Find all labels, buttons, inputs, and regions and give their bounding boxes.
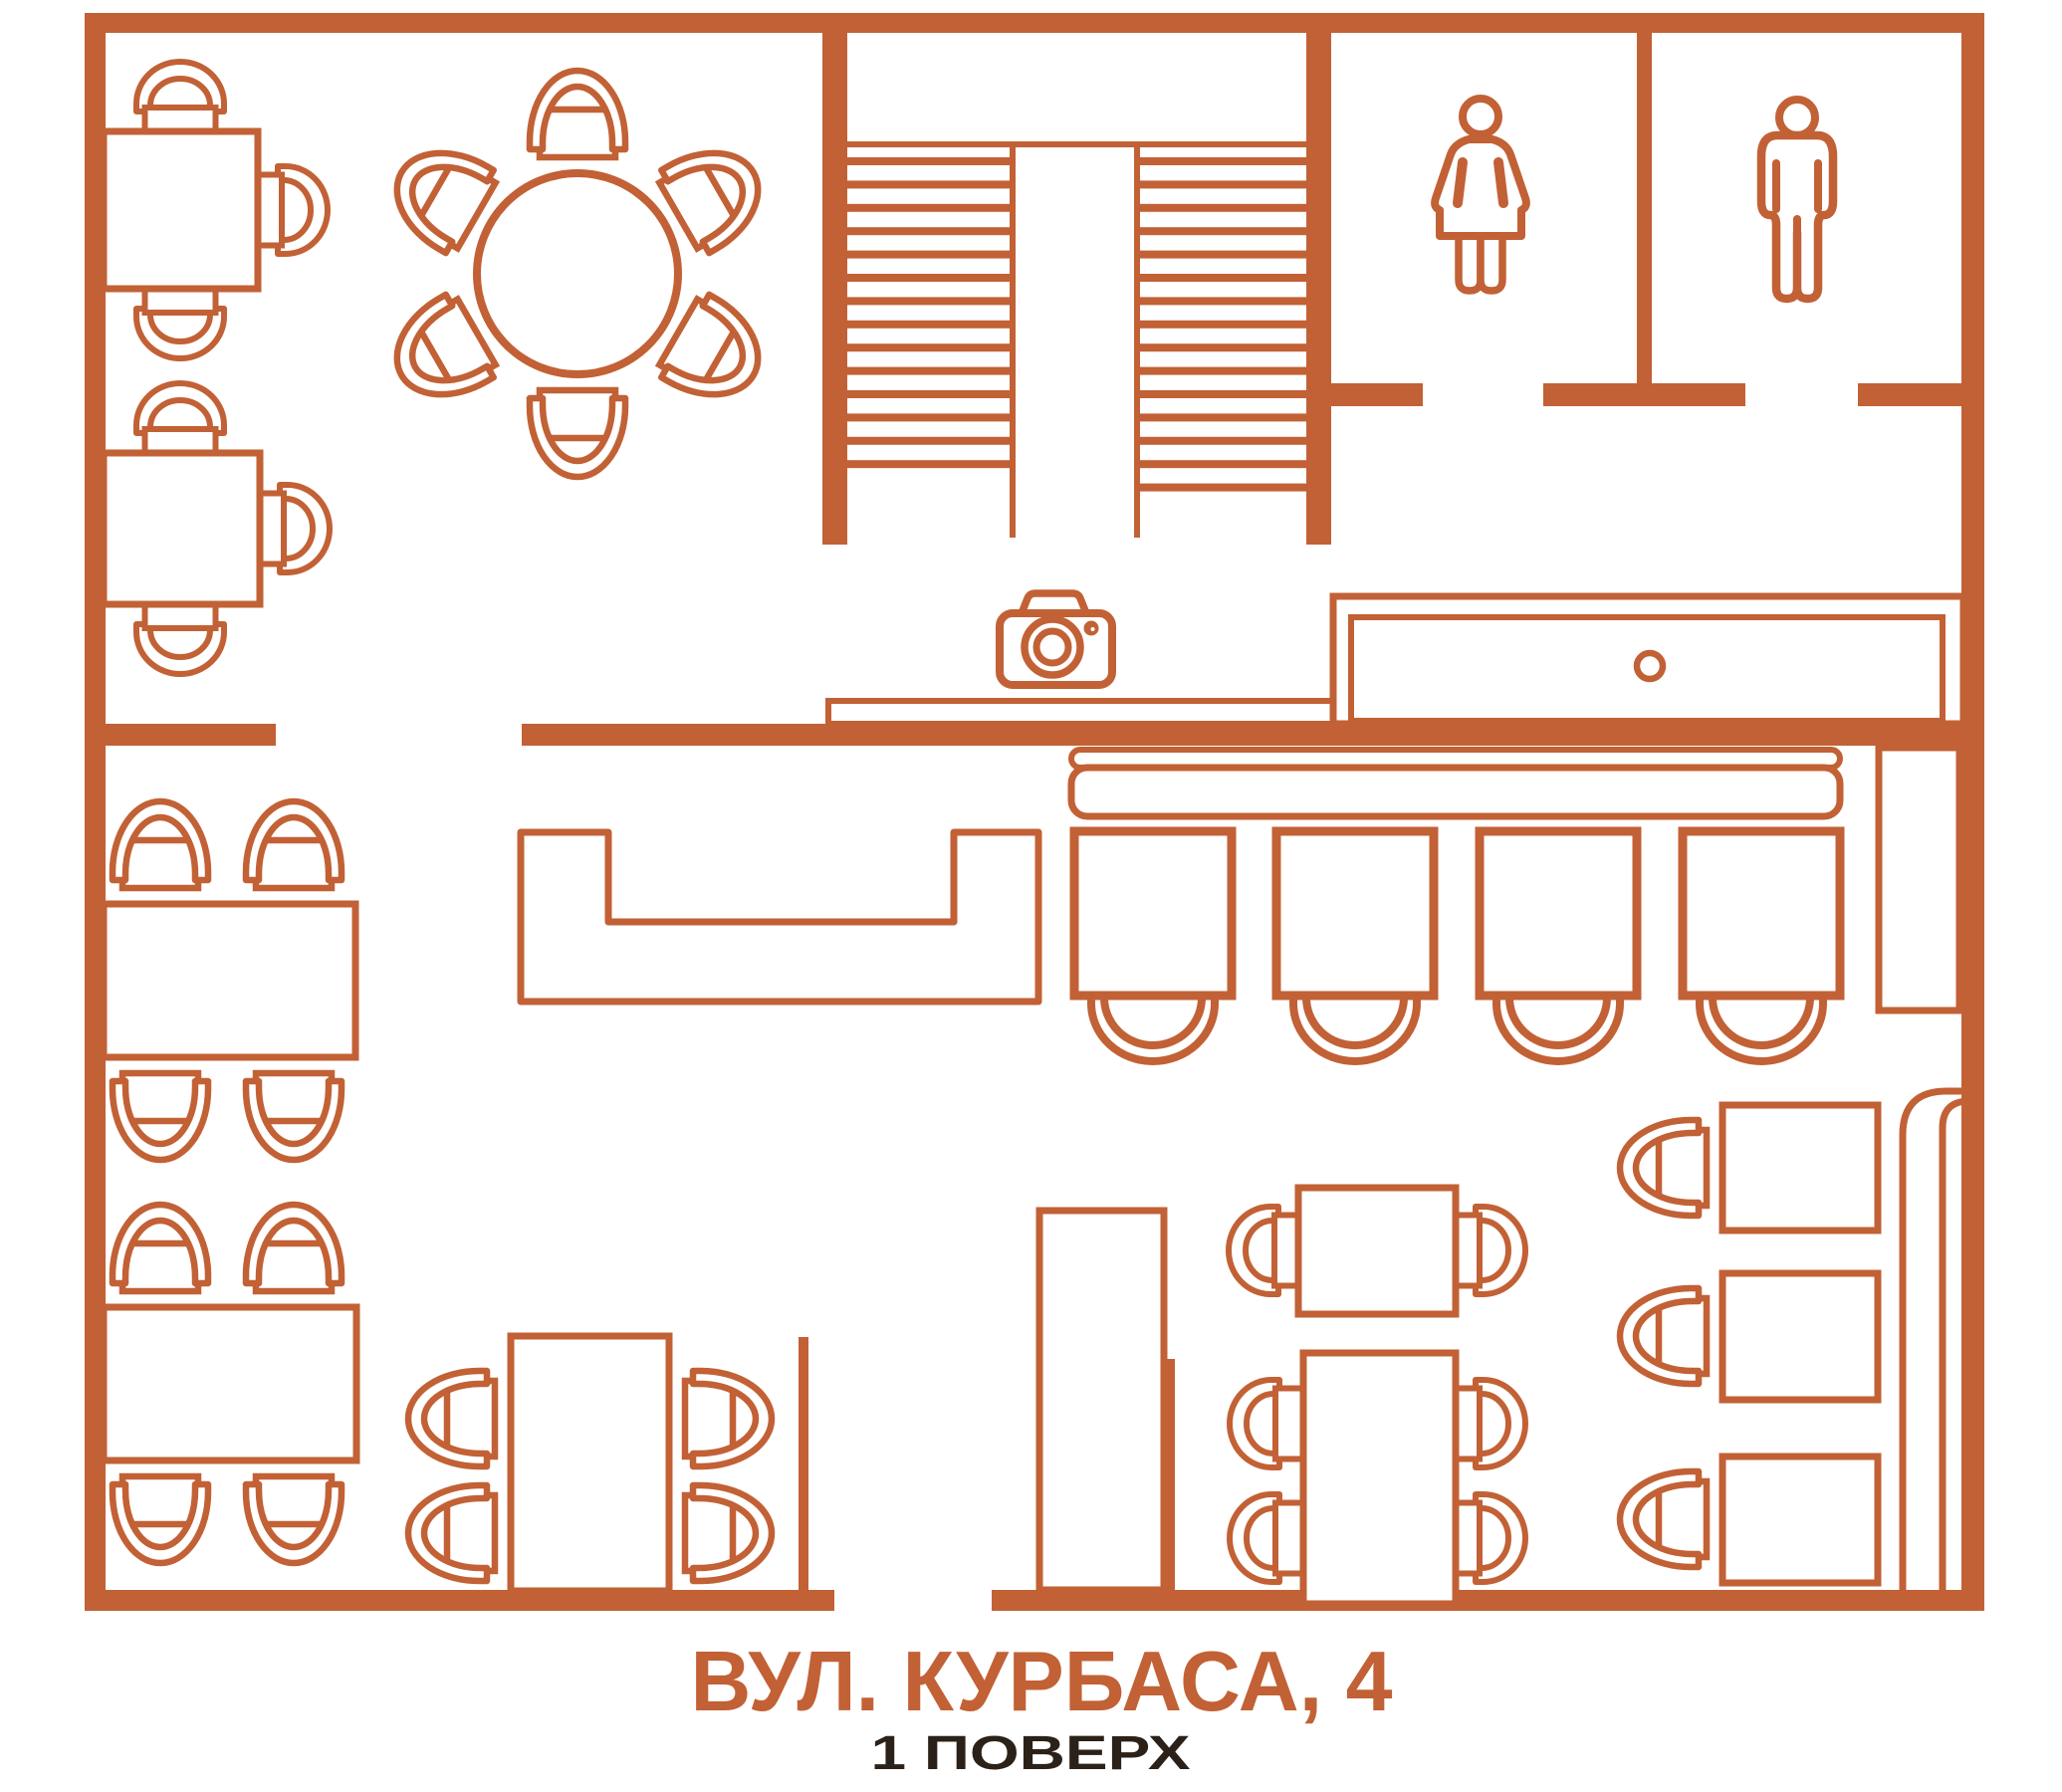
svg-text:ВУЛ. КУРБАСА, 4: ВУЛ. КУРБАСА, 4 xyxy=(691,1635,1393,1729)
svg-text:1 ПОВЕРХ: 1 ПОВЕРХ xyxy=(871,1727,1191,1780)
